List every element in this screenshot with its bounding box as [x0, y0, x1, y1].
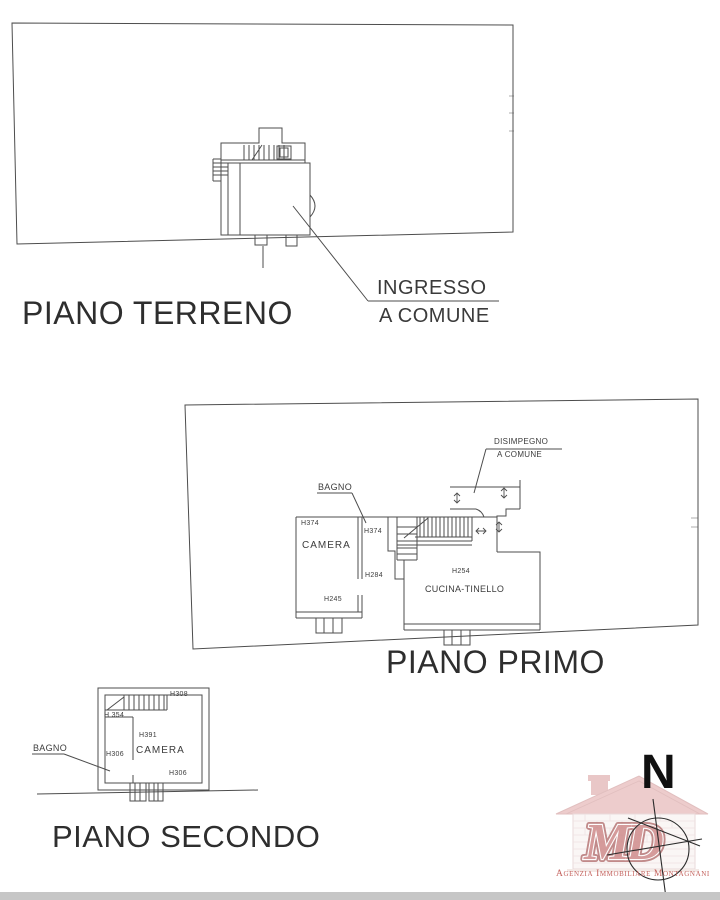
stairs-ground — [244, 145, 284, 160]
door-arc-ground — [310, 195, 315, 217]
label-disimpegno-comune: A COMUNE — [497, 451, 542, 459]
label-disimpegno: DISIMPEGNO — [494, 438, 548, 446]
label-h391: H391 — [139, 732, 157, 739]
label-ingresso: INGRESSO — [377, 278, 487, 298]
north-label: N — [641, 749, 676, 797]
bagno-leader-first — [317, 493, 366, 523]
title-piano-terreno: PIANO TERRENO — [22, 297, 293, 329]
parcel-outline-first — [185, 399, 698, 649]
ground-line — [37, 790, 258, 794]
plan-ground-floor — [12, 23, 514, 301]
logo-monogram: MD — [583, 814, 663, 871]
label-h308: H308 — [170, 691, 188, 698]
label-h254: H254 — [452, 568, 470, 575]
label-h306-bottom: H306 — [169, 770, 187, 777]
label-camera-second: CAMERA — [136, 746, 185, 756]
parcel-outline-ground — [12, 23, 513, 244]
agency-name: Agenzia Immobiliare Montagnani — [556, 869, 710, 879]
label-h306-left: H306 — [106, 751, 124, 758]
label-h374-camera: H374 — [301, 520, 319, 527]
building-outline-ground — [221, 128, 310, 235]
floorplan-page: MD MD — [0, 0, 720, 900]
label-ingresso-comune: A COMUNE — [379, 306, 490, 326]
label-h245: H245 — [324, 596, 342, 603]
label-h284: H284 — [365, 572, 383, 579]
label-camera-first: CAMERA — [302, 541, 351, 551]
stairs-second — [105, 695, 167, 710]
title-piano-primo: PIANO PRIMO — [386, 646, 605, 678]
scan-edge-artifact — [0, 892, 720, 900]
plan-first-floor — [185, 399, 698, 649]
title-piano-secondo: PIANO SECONDO — [52, 821, 320, 852]
label-bagno-second: BAGNO — [33, 744, 67, 753]
label-bagno-first: BAGNO — [318, 483, 352, 492]
label-h354: H 354 — [104, 712, 124, 719]
label-cucina-tinello: CUCINA-TINELLO — [425, 585, 504, 594]
floorplan-linework: MD MD — [0, 0, 720, 900]
label-h374-bagno: H374 — [364, 528, 382, 535]
agency-logo-watermark: MD MD — [556, 775, 708, 872]
